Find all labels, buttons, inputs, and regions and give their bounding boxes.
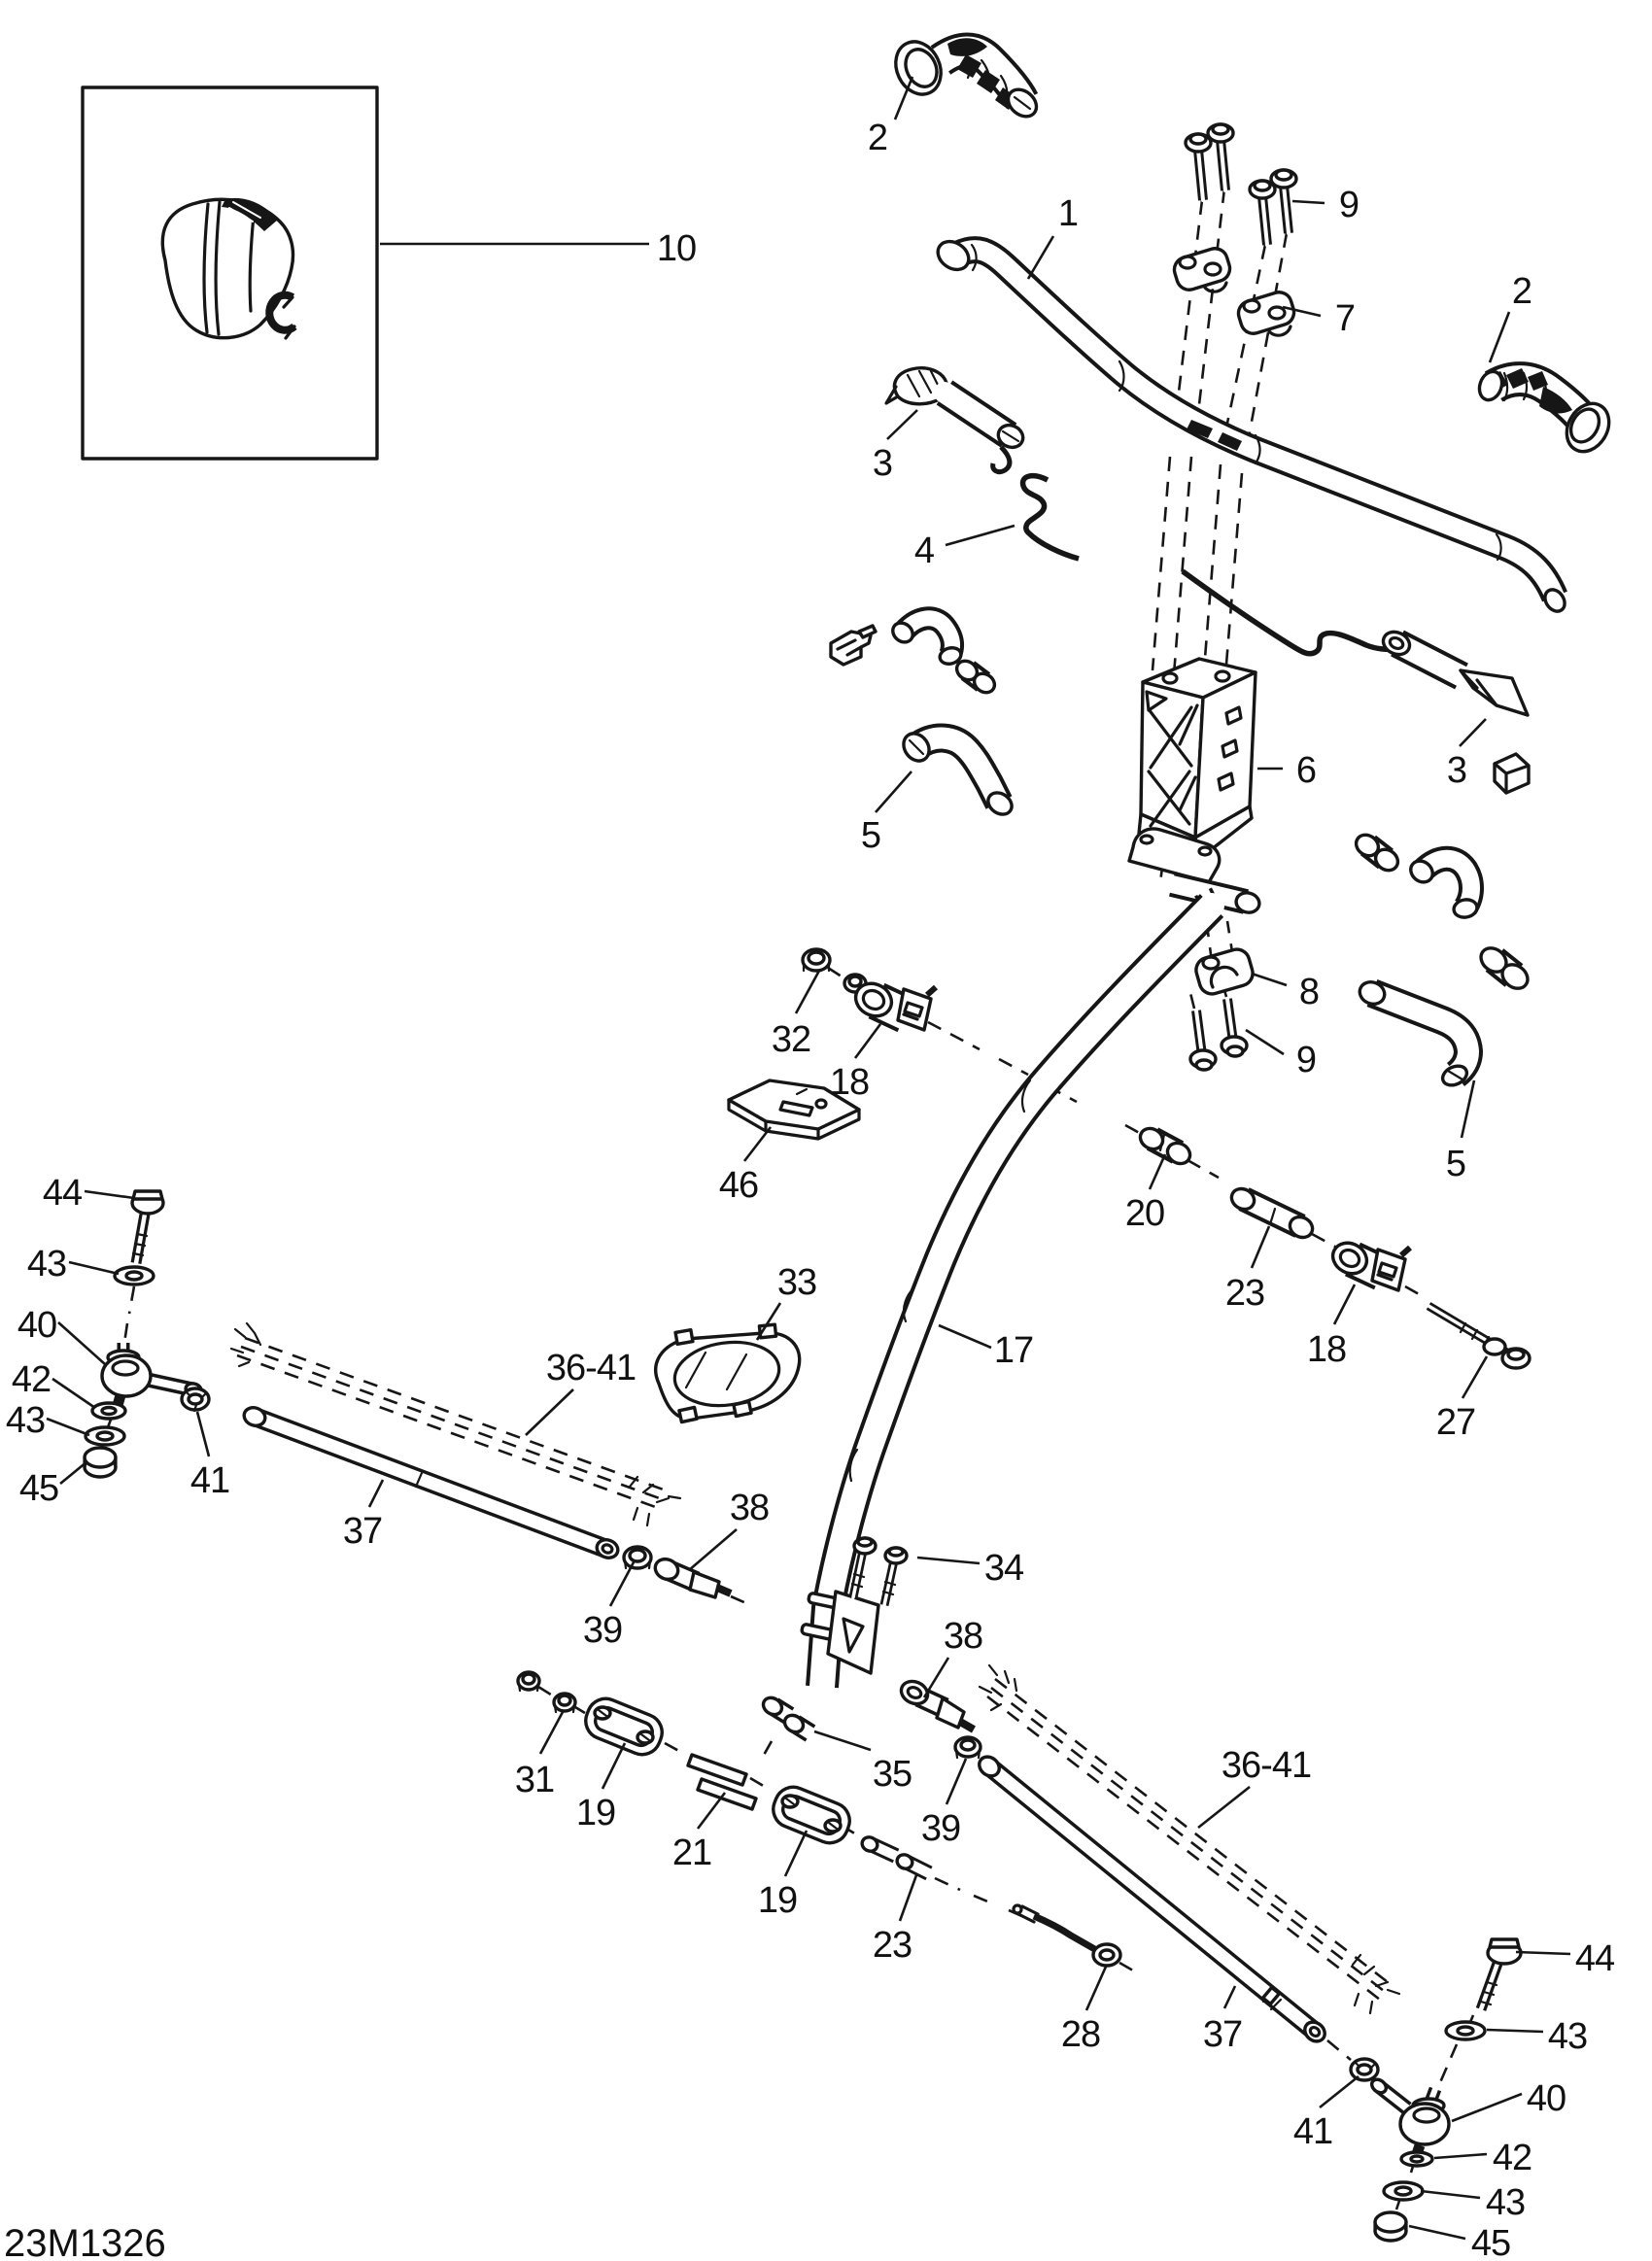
- part-clamp-7b: [1235, 290, 1296, 337]
- part-label-40-47: 40: [1527, 2078, 1566, 2119]
- part-label-33-16: 33: [777, 1262, 816, 1303]
- part-bolts-9-lower: [1190, 999, 1247, 1070]
- part-bolt-27: [1428, 1306, 1530, 1368]
- leader-line-41-29: [197, 1412, 209, 1456]
- leader-line-38-32: [689, 1529, 737, 1570]
- part-lockwasher-41-left: [182, 1388, 209, 1411]
- leader-line-45-28: [60, 1461, 87, 1484]
- part-sleeve-23-upper: [1228, 1185, 1317, 1242]
- part-label-37-31: 37: [343, 1511, 382, 1552]
- part-label-38-32: 38: [730, 1488, 769, 1528]
- part-bolt-44-right: [1481, 1939, 1521, 2009]
- part-pad-33: [656, 1324, 800, 1422]
- leader-line-35-35: [814, 1731, 871, 1750]
- part-label-44-23: 44: [43, 1173, 83, 1214]
- leader-line-36-41-45: [1198, 1787, 1250, 1828]
- part-tierod-37-left: [242, 1405, 621, 1560]
- diagram-canvas: 2191072345638932184633172023182754443404…: [0, 0, 1652, 2261]
- part-shims-21: [688, 1755, 756, 1809]
- leader-line-5-8: [876, 771, 912, 812]
- part-bolt-44-left: [132, 1191, 163, 1263]
- part-label-42-26: 42: [12, 1359, 51, 1400]
- diagram-code: 23M1326: [4, 2222, 166, 2261]
- leader-line-27-21: [1463, 1356, 1487, 1398]
- part-label-9-2: 9: [1339, 185, 1359, 225]
- part-label-36-41-45: 36-41: [1222, 1745, 1311, 1786]
- leader-line-3-6: [887, 410, 917, 439]
- part-hose-left-5: [899, 729, 1016, 819]
- leader-line-19-39: [602, 1743, 625, 1789]
- part-cube: [1495, 754, 1529, 793]
- leader-line-43-51: [1421, 2191, 1480, 2198]
- leader-line-42-50: [1434, 2154, 1487, 2158]
- part-balljoint-38-left: [652, 1556, 731, 1597]
- part-label-31-38: 31: [515, 1760, 554, 1800]
- leader-line-31-38: [540, 1712, 563, 1754]
- part-block-19-upper: [580, 1694, 668, 1761]
- part-sleeves-23-lower: [860, 1834, 929, 1873]
- part-label-43-24: 43: [27, 1244, 66, 1285]
- part-washer-43-left-bottom: [86, 1427, 124, 1445]
- leader-line-3-10: [1460, 719, 1486, 746]
- part-nut-39-left: [624, 1547, 651, 1568]
- part-sleeve-left: [953, 657, 998, 696]
- part-washer-43-right-bottom: [1384, 2182, 1423, 2200]
- leader-line-43-49: [1487, 2030, 1543, 2032]
- inset-box: [83, 87, 377, 459]
- leader-line-23-19: [1252, 1226, 1269, 1268]
- part-label-23-42: 23: [873, 1925, 912, 1966]
- leader-line-46-15: [744, 1127, 771, 1161]
- part-washer-42-left: [92, 1403, 125, 1419]
- leader-line-40-47: [1452, 2094, 1522, 2121]
- part-block-19-lower: [768, 1782, 855, 1849]
- leader-line-5-22: [1462, 1080, 1474, 1138]
- leader-line-32-13: [796, 971, 819, 1013]
- part-label-10-3: 10: [657, 228, 696, 269]
- part-label-32-13: 32: [772, 1019, 810, 1060]
- part-label-20-18: 20: [1125, 1193, 1164, 1234]
- part-nut-39-right: [955, 1737, 981, 1758]
- leader-line-8-11: [1252, 974, 1287, 985]
- leader-line-9-2: [1292, 201, 1325, 203]
- leader-line-43-27: [47, 1419, 89, 1435]
- part-label-43-49: 43: [1548, 2016, 1587, 2057]
- leader-line-17-17: [939, 1325, 991, 1348]
- leader-line-21-40: [698, 1793, 725, 1829]
- leader-line-37-44: [1224, 1986, 1235, 2008]
- part-label-8-11: 8: [1299, 972, 1319, 1012]
- part-label-2-0: 2: [868, 118, 887, 158]
- leader-line-37-31: [369, 1480, 383, 1507]
- part-label-3-10: 3: [1447, 750, 1466, 791]
- leader-line-36-41-30: [526, 1389, 573, 1435]
- part-bolts-9-top: [1186, 124, 1296, 245]
- part-label-45-52: 45: [1471, 2223, 1510, 2261]
- leader-line-1-1: [1028, 236, 1053, 279]
- part-sensor-18-left: [844, 975, 936, 1030]
- part-label-46-15: 46: [719, 1165, 758, 1206]
- part-label-19-39: 19: [576, 1793, 615, 1833]
- part-wire-4: [1023, 476, 1395, 654]
- leader-line-39-33: [610, 1560, 635, 1606]
- part-label-28-43: 28: [1061, 2014, 1100, 2055]
- part-label-5-8: 5: [861, 815, 880, 856]
- leader-line-45-52: [1409, 2226, 1465, 2239]
- part-label-37-44: 37: [1203, 2014, 1242, 2055]
- leader-line-42-26: [52, 1379, 95, 1408]
- leader-line-40-25: [58, 1322, 105, 1364]
- part-label-44-48: 44: [1575, 1938, 1615, 1979]
- part-label-27-21: 27: [1436, 1402, 1475, 1443]
- part-label-2-5: 2: [1512, 271, 1532, 312]
- leader-line-4-7: [946, 526, 1015, 545]
- part-label-23-19: 23: [1225, 1273, 1264, 1314]
- part-label-18-14: 18: [830, 1062, 869, 1103]
- part-arm-28: [1014, 1905, 1120, 1966]
- part-sleeve-right-2: [1476, 943, 1532, 994]
- leader-line-41-46: [1320, 2076, 1359, 2107]
- part-label-41-46: 41: [1293, 2111, 1332, 2152]
- part-label-34-34: 34: [984, 1548, 1024, 1589]
- steering-parts-diagram: 2191072345638932184633172023182754443404…: [0, 0, 1652, 2261]
- leader-line-34-34: [917, 1558, 980, 1563]
- part-clamp-8: [1193, 946, 1256, 997]
- part-elbow-left: [889, 618, 963, 666]
- part-label-7-4: 7: [1335, 298, 1355, 339]
- part-label-45-28: 45: [19, 1468, 58, 1509]
- leader-line-19-41: [785, 1831, 807, 1876]
- part-label-35-35: 35: [873, 1754, 912, 1795]
- part-label-18-20: 18: [1307, 1329, 1346, 1370]
- part-washer-42-right: [1401, 2152, 1432, 2166]
- part-label-5-22: 5: [1446, 1144, 1465, 1184]
- part-washer-43-left-top: [115, 1267, 154, 1285]
- part-nut-32: [803, 949, 830, 971]
- part-label-6-9: 6: [1296, 750, 1316, 791]
- part-bushings-35: [760, 1695, 810, 1735]
- part-balljoint-40-right: [1369, 2076, 1449, 2157]
- part-label-4-7: 4: [914, 531, 935, 571]
- part-nut-45-right: [1375, 2212, 1406, 2241]
- leader-line-38-36: [924, 1658, 948, 1697]
- leader-line-18-20: [1334, 1285, 1355, 1324]
- part-label-19-41: 19: [758, 1880, 797, 1921]
- part-label-39-37: 39: [921, 1808, 960, 1849]
- part-label-9-12: 9: [1296, 1040, 1316, 1080]
- part-tierod-37-right: [976, 1753, 1328, 2045]
- leader-line-43-24: [69, 1262, 119, 1274]
- part-bolts-34: [852, 1538, 907, 1605]
- part-washer-43-right-top: [1446, 2022, 1485, 2039]
- part-label-21-40: 21: [672, 1833, 711, 1873]
- leader-line-28-43: [1086, 1967, 1106, 2010]
- part-label-43-51: 43: [1486, 2182, 1525, 2223]
- leader-line-18-14: [855, 1024, 880, 1058]
- part-hose-right-5: [1357, 978, 1470, 1089]
- part-label-39-33: 39: [583, 1610, 622, 1651]
- part-label-3-6: 3: [873, 443, 892, 484]
- part-label-42-50: 42: [1493, 2138, 1532, 2178]
- part-clamp-7a: [1171, 246, 1232, 293]
- part-label-38-36: 38: [944, 1616, 982, 1657]
- leader-line-2-5: [1490, 312, 1509, 362]
- part-sensor-18-right: [1327, 1237, 1410, 1290]
- part-lockwasher-41-right: [1351, 2059, 1378, 2080]
- part-handlebar: [933, 236, 1569, 615]
- part-roller-20: [1137, 1124, 1194, 1167]
- leader-line-23-42: [900, 1875, 916, 1921]
- leader-line-39-37: [946, 1759, 966, 1804]
- part-grip-right: [1476, 368, 1618, 460]
- leader-line-44-48: [1516, 1952, 1570, 1954]
- part-nut-45-left: [85, 1448, 116, 1477]
- leader-line-20-18: [1150, 1154, 1165, 1189]
- part-elbow-right: [1406, 857, 1478, 919]
- part-label-36-41-30: 36-41: [546, 1348, 636, 1388]
- part-label-40-25: 40: [17, 1305, 56, 1346]
- part-label-1-1: 1: [1058, 193, 1078, 234]
- part-clip: [831, 626, 876, 665]
- part-label-41-29: 41: [190, 1460, 229, 1501]
- part-heater-right: [1380, 628, 1528, 715]
- leader-line-9-12: [1246, 1030, 1284, 1054]
- leader-line-44-23: [85, 1191, 134, 1198]
- part-label-17-17: 17: [994, 1330, 1033, 1371]
- part-balljoint-38-right: [898, 1677, 974, 1730]
- part-label-43-27: 43: [6, 1400, 45, 1441]
- part-sleeve-right-1: [1352, 831, 1401, 874]
